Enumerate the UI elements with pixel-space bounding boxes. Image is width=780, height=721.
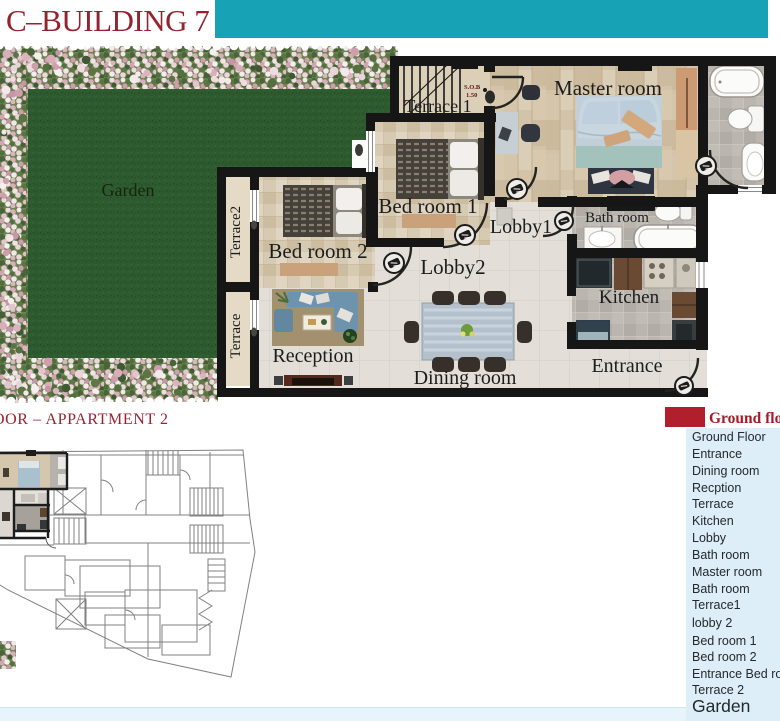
svg-text:Bath room: Bath room bbox=[692, 582, 750, 596]
svg-text:Terrace1: Terrace1 bbox=[692, 598, 741, 612]
svg-text:Garden: Garden bbox=[102, 180, 155, 200]
svg-text:Bed room 1: Bed room 1 bbox=[692, 634, 757, 648]
svg-text:Kitchen: Kitchen bbox=[692, 514, 734, 528]
svg-text:C–BUILDING 7: C–BUILDING 7 bbox=[6, 3, 209, 38]
svg-text:Bed room 2: Bed room 2 bbox=[268, 239, 367, 263]
svg-text:Garden: Garden bbox=[692, 696, 750, 716]
svg-text:Reception: Reception bbox=[272, 345, 353, 367]
svg-text:Bath room: Bath room bbox=[585, 210, 649, 226]
svg-text:Recption: Recption bbox=[692, 481, 741, 495]
svg-text:Dining room: Dining room bbox=[692, 464, 759, 478]
svg-text:Lobby1: Lobby1 bbox=[490, 216, 552, 238]
svg-text:Terrace 1: Terrace 1 bbox=[404, 96, 471, 116]
svg-text:Kitchen: Kitchen bbox=[599, 287, 660, 308]
svg-text:Dining room: Dining room bbox=[414, 367, 517, 389]
svg-text:Bath room: Bath room bbox=[692, 548, 750, 562]
svg-text:Master room: Master room bbox=[692, 565, 762, 579]
svg-text:Master room: Master room bbox=[554, 76, 662, 100]
svg-text:S.O.B: S.O.B bbox=[464, 84, 481, 91]
svg-text:Terrace: Terrace bbox=[228, 313, 244, 358]
svg-text:Entrance: Entrance bbox=[591, 355, 662, 377]
svg-text:Entrance: Entrance bbox=[692, 447, 742, 461]
svg-text:Terrace 2: Terrace 2 bbox=[692, 683, 744, 697]
svg-text:Ground floor: Ground floor bbox=[709, 410, 780, 427]
svg-text:lobby 2: lobby 2 bbox=[692, 616, 732, 630]
svg-text:Terrace: Terrace bbox=[692, 497, 734, 511]
svg-text:Lobby2: Lobby2 bbox=[420, 255, 485, 279]
svg-text:OOR – APPARTMENT 2: OOR – APPARTMENT 2 bbox=[0, 411, 169, 428]
svg-text:Entrance Bed ro: Entrance Bed ro bbox=[692, 667, 780, 681]
svg-text:Terrace2: Terrace2 bbox=[228, 206, 244, 258]
svg-text:Ground Floor: Ground Floor bbox=[692, 430, 766, 444]
svg-text:Bed room 2: Bed room 2 bbox=[692, 650, 757, 664]
svg-text:Bed room 1: Bed room 1 bbox=[378, 194, 477, 218]
svg-text:Lobby: Lobby bbox=[692, 531, 727, 545]
